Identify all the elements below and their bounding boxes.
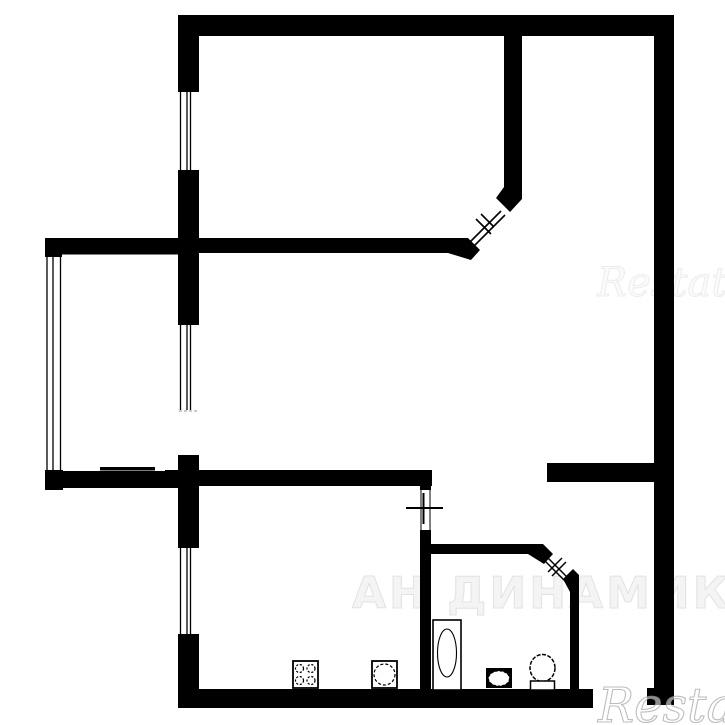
bottom-right-restate-watermark: Restate [597, 678, 725, 725]
floor-plan-canvas: АН ДИНАМИКА Restate [0, 0, 725, 725]
overlay-watermarks: Restate [0, 0, 725, 725]
